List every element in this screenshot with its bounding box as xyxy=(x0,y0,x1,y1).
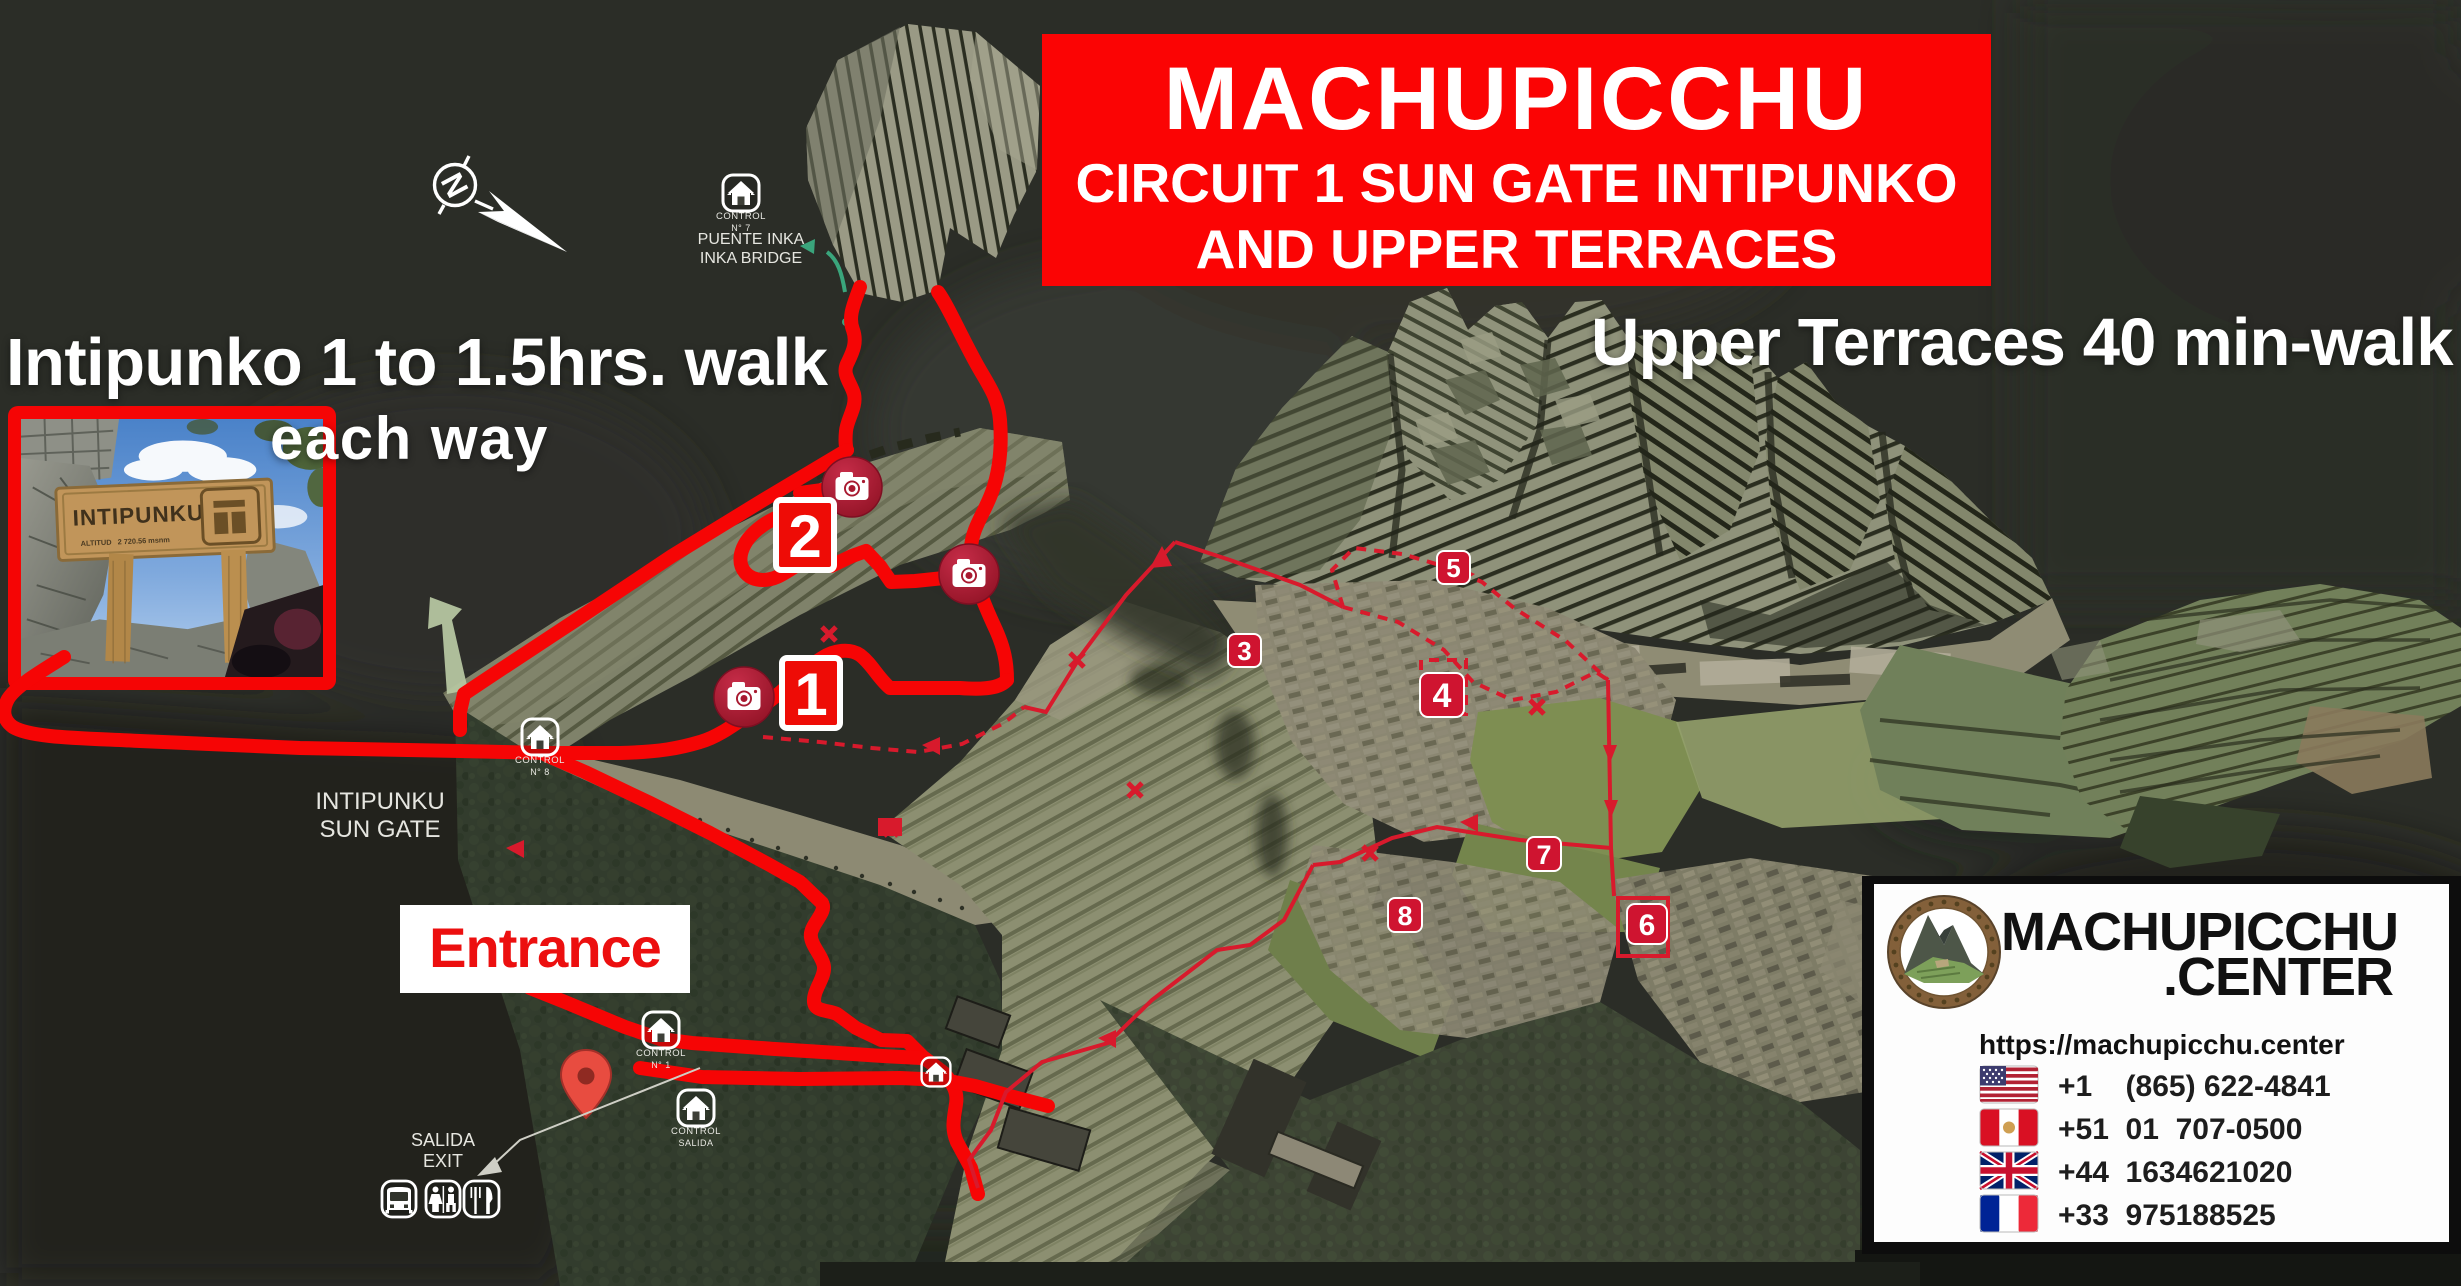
svg-text:CONTROL: CONTROL xyxy=(716,211,766,222)
svg-text:+44 1634621020: +44 1634621020 xyxy=(2058,1156,2292,1189)
svg-text:N° 1: N° 1 xyxy=(651,1060,671,1070)
svg-text:.CENTER: .CENTER xyxy=(2163,947,2393,1007)
svg-text:+51 01 707-0500: +51 01 707-0500 xyxy=(2058,1113,2302,1146)
svg-text:2: 2 xyxy=(788,503,821,570)
svg-text:CONTROL: CONTROL xyxy=(515,755,565,766)
svg-text:CONTROL: CONTROL xyxy=(671,1126,721,1137)
svg-text:+33 975188525: +33 975188525 xyxy=(2058,1199,2276,1232)
svg-text:1: 1 xyxy=(794,661,827,728)
svg-text:4: 4 xyxy=(1433,677,1452,715)
svg-text:7: 7 xyxy=(1536,840,1551,870)
svg-text:6: 6 xyxy=(1639,909,1656,942)
svg-text:5: 5 xyxy=(1446,553,1460,583)
svg-text:SALIDA: SALIDA xyxy=(678,1138,713,1148)
svg-text:+1 (865) 622-4841: +1 (865) 622-4841 xyxy=(2058,1070,2331,1103)
svg-text:N° 8: N° 8 xyxy=(530,767,550,777)
svg-text:3: 3 xyxy=(1237,636,1251,666)
svg-text:CONTROL: CONTROL xyxy=(636,1048,686,1059)
svg-text:https://machupicchu.center: https://machupicchu.center xyxy=(1979,1029,2345,1060)
svg-text:8: 8 xyxy=(1397,901,1412,931)
